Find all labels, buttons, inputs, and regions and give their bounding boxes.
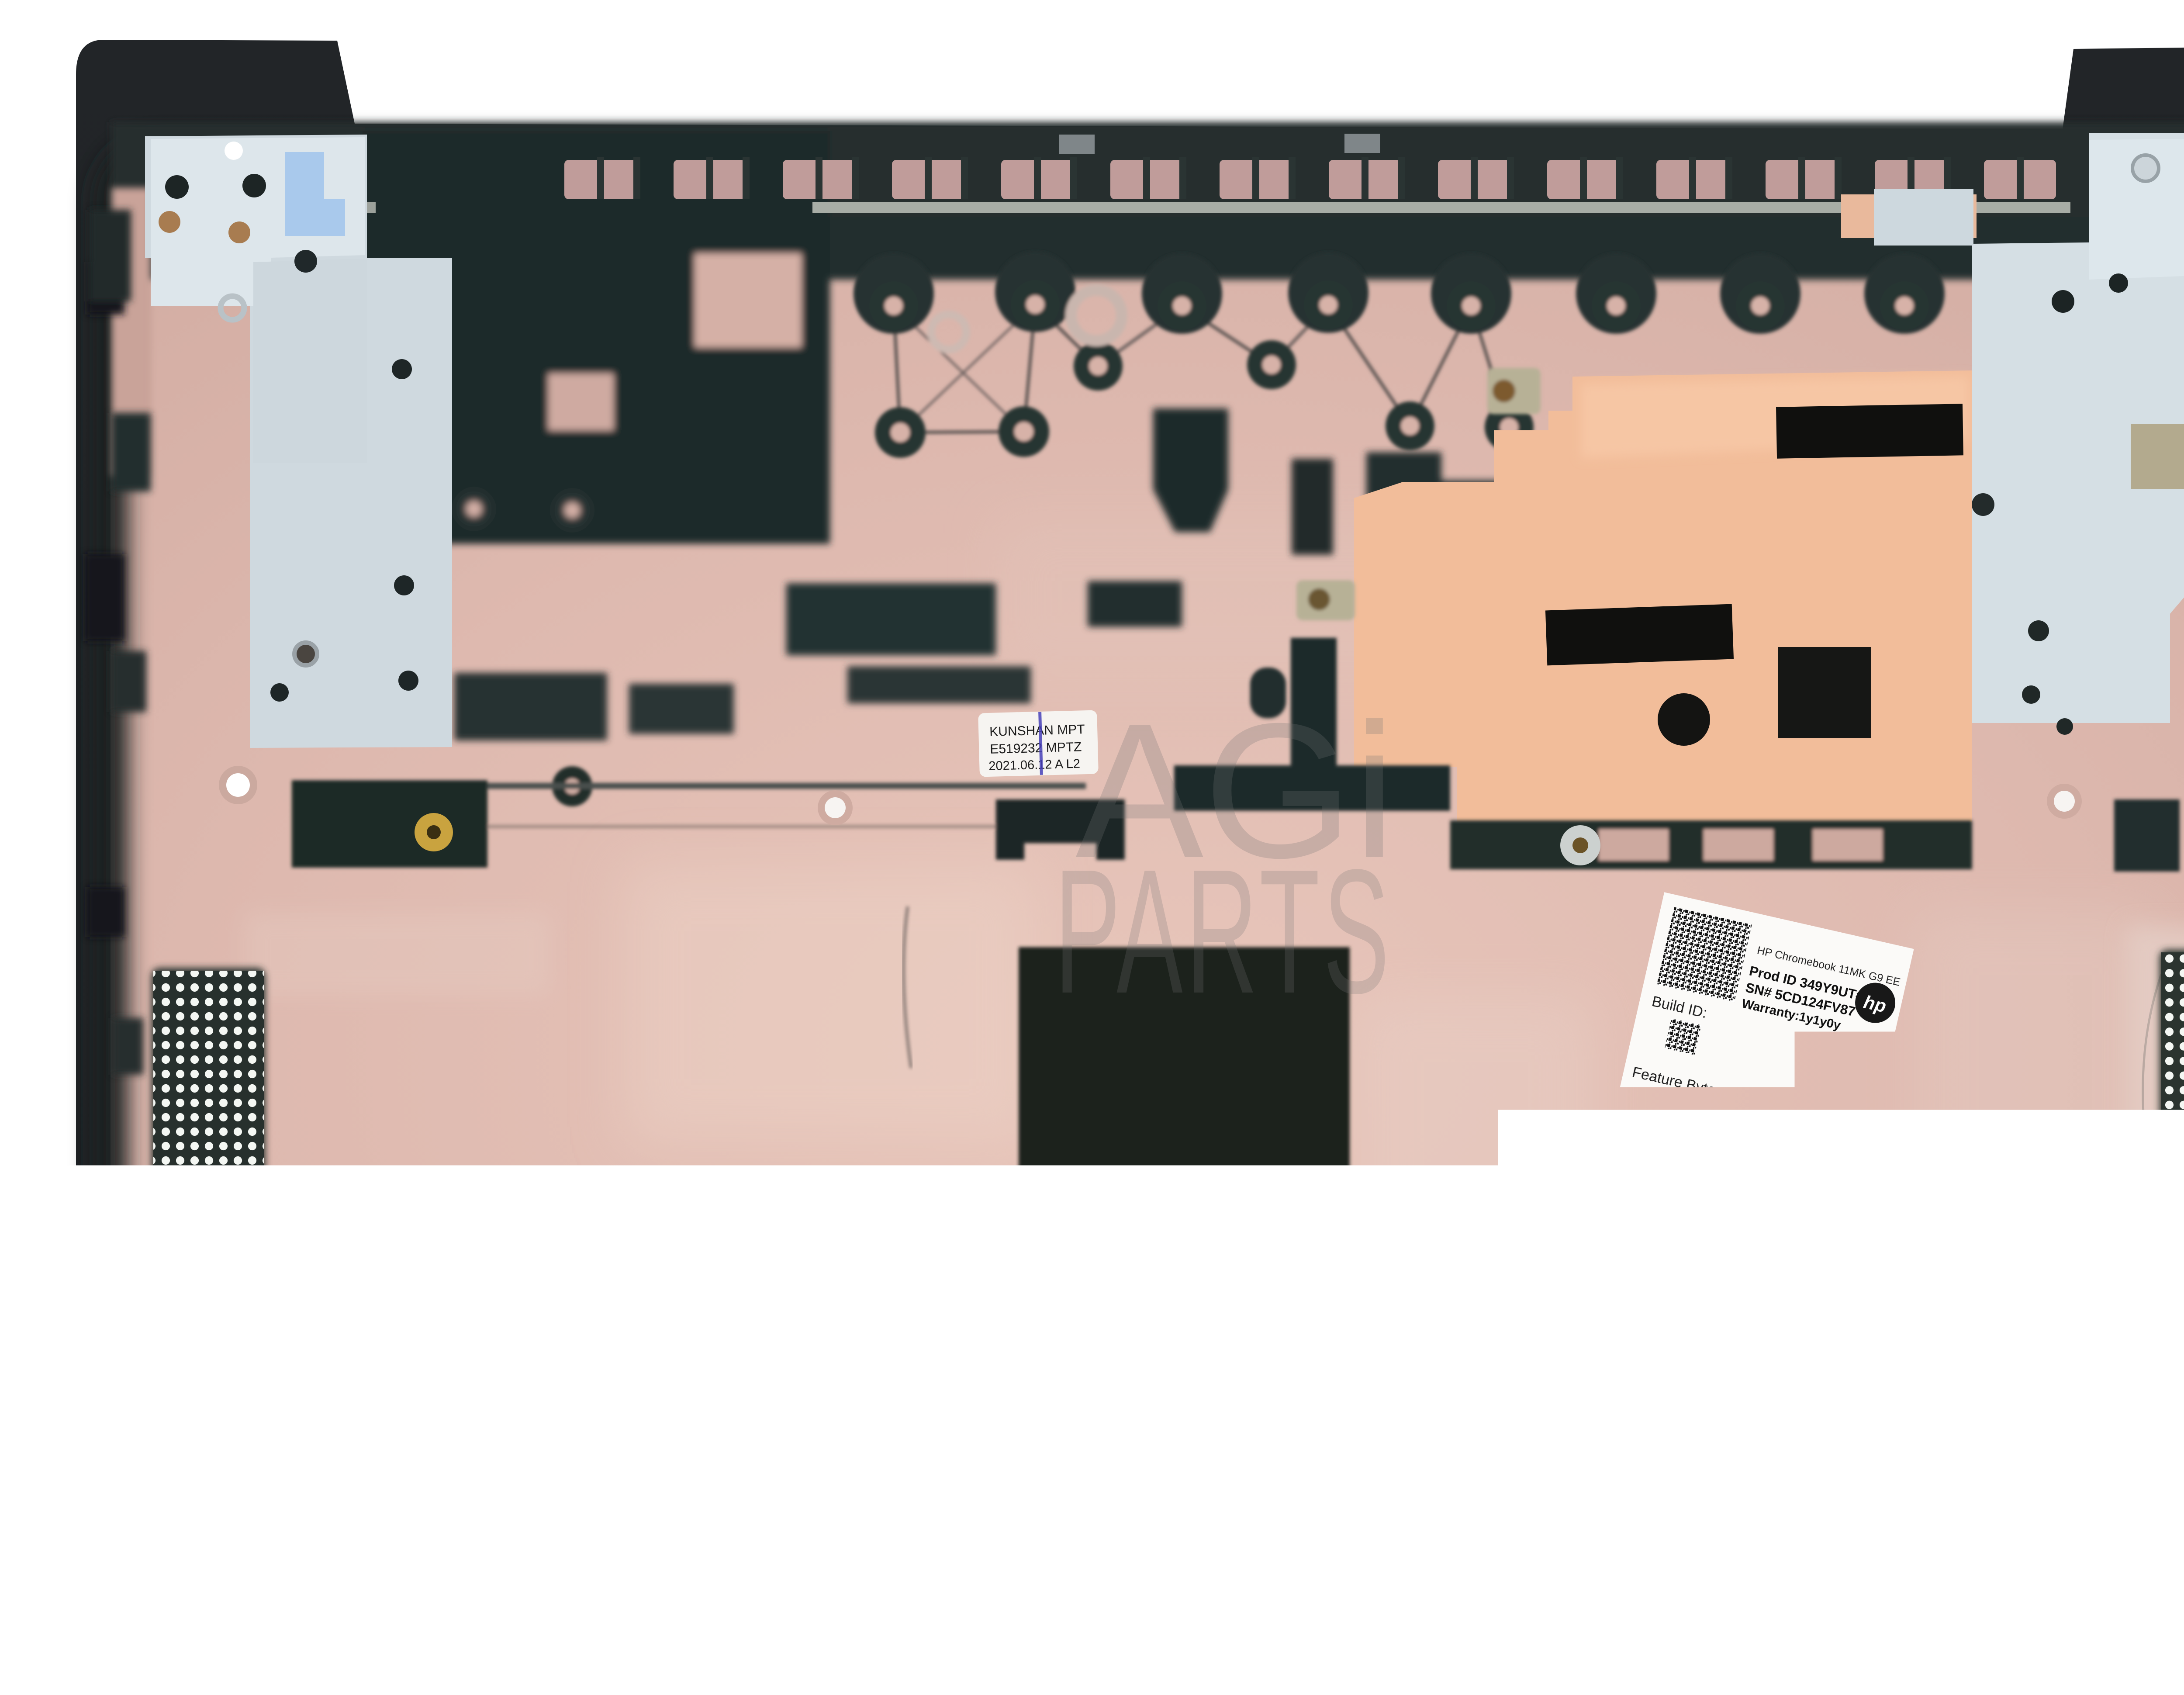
svg-text:TFQ380GMTP201245059Y: TFQ380GMTP201245059Y (573, 1147, 816, 1173)
svg-text:KUNSHAN MPT: KUNSHAN MPT (989, 722, 1085, 739)
svg-text:PARTS: PARTS (1054, 833, 1393, 1031)
svg-text:E519232 MPTZ: E519232 MPTZ (990, 740, 1082, 756)
svg-text:MTP4C0GMBATP20: MTP4C0GMBATP20 (1386, 1580, 1462, 1589)
svg-text:2021.06.12 A L2: 2021.06.12 A L2 (988, 757, 1080, 773)
